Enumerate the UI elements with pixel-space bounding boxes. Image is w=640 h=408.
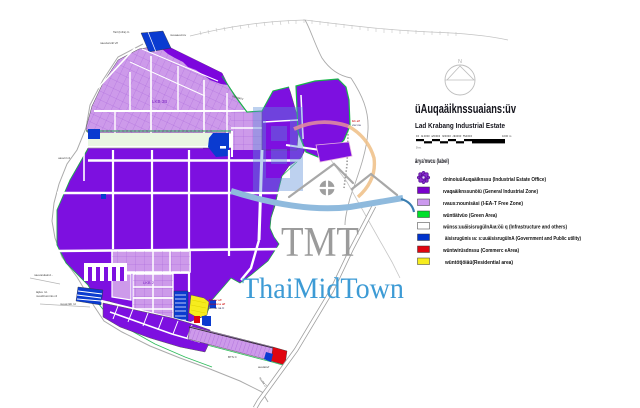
svg-text:0 m.: 0 m. — [416, 146, 422, 150]
svg-text:dninoiuûAuqaäiknssu (Industria: dninoiuûAuqaäiknssu (Industrial Estate O… — [443, 177, 546, 183]
svg-text:LKB 3B: LKB 3B — [152, 99, 167, 104]
svg-text:N: N — [458, 59, 462, 65]
svg-text:LKB 2: LKB 2 — [143, 280, 155, 285]
svg-text:ârya'nwcu (label): ârya'nwcu (label) — [415, 158, 449, 165]
svg-text:nuuat lkb rd: nuuat lkb rd — [60, 302, 76, 306]
svg-text:uasvnl rd.: uasvnl rd. — [58, 156, 71, 160]
svg-text:1000 m: 1000 m — [502, 134, 512, 138]
svg-text:naoviwsnll vff: naoviwsnll vff — [100, 41, 118, 45]
svg-text:BTS C: BTS C — [228, 355, 238, 359]
svg-text:ThaiMidTown: ThaiMidTown — [242, 272, 404, 305]
svg-text:äisisrugünis ıa: s:uuäisisrugü: äisisrugünis ıa: s:uuäisisrugülnA (Gover… — [445, 236, 581, 242]
svg-text:vsv na: vsv na — [352, 123, 361, 127]
svg-text:auulat na C: auulat na C — [209, 306, 225, 310]
svg-text:0 100 200 300 400 500: 0 100 200 300 400 500 — [416, 134, 473, 138]
svg-text:naovaiulaind -: naovaiulaind - — [34, 273, 53, 277]
svg-text:wünss:uuäisisrugülnAıa:öü q (I: wünss:uuäisisrugülnAıa:öü q (Infrastruct… — [442, 225, 567, 231]
svg-text:Lad Krabang Industrial Estate: Lad Krabang Industrial Estate — [415, 121, 505, 130]
svg-text:ıvaus:nounisäsi (I-EA-T Free Z: ıvaus:nounisäsi (I-EA-T Free Zone) — [443, 201, 523, 207]
svg-text:wüntwirüsdnssu (Commerc eArea): wüntwirüsdnssu (Commerc eArea) — [442, 248, 519, 254]
svg-text:wüntötjöiäü(Residential area): wüntötjöiäü(Residential area) — [444, 260, 513, 266]
svg-text:üAuqaäiknssuaians:üv: üAuqaäiknssuaians:üv — [415, 102, 516, 116]
svg-text:wüntiätvüo (Green Area): wüntiätvüo (Green Area) — [442, 213, 497, 219]
svg-text:nuuidiruminis rd: nuuidiruminis rd — [36, 294, 58, 298]
svg-text:TMT: TMT — [281, 220, 359, 266]
svg-text:auulativf: auulativf — [258, 365, 269, 369]
svg-text:Tail (Infra) C.: Tail (Infra) C. — [113, 30, 130, 34]
svg-text:ıvaqaäiknssunöiü (General Indu: ıvaqaäiknssunöiü (General Industrial Zon… — [443, 189, 538, 195]
svg-text:nuuaaovnsv: nuuaaovnsv — [170, 33, 187, 37]
